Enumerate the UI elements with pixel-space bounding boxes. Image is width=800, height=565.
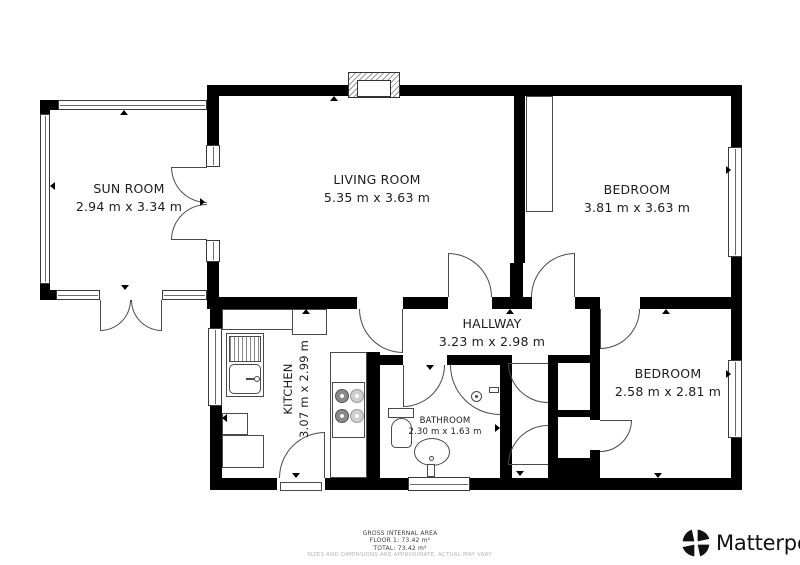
shower-head	[471, 391, 482, 402]
dimension-marker	[50, 182, 55, 190]
room-dims: 3.07 m x 2.99 m	[296, 340, 312, 438]
window	[728, 147, 742, 257]
dimension-marker	[726, 370, 731, 378]
wall	[590, 309, 600, 355]
room-label-bedroom-2: BEDROOM 2.58 m x 2.81 m	[615, 365, 721, 401]
window	[408, 477, 470, 491]
matterport-icon	[681, 528, 711, 558]
room-name: KITCHEN	[280, 340, 296, 438]
area-summary: GROSS INTERNAL AREA FLOOR 1: 73.42 m² TO…	[300, 530, 500, 559]
dimension-marker	[506, 309, 514, 314]
room-label-sun-room: SUN ROOM 2.94 m x 3.34 m	[76, 180, 182, 216]
matterport-wordmark: Matterport®	[716, 531, 800, 555]
room-dims: 3.81 m x 3.63 m	[584, 199, 690, 217]
washbasin-drain	[429, 456, 434, 461]
gross-internal-area-title: GROSS INTERNAL AREA	[300, 530, 500, 537]
kitchen-counter	[222, 435, 264, 468]
wall	[207, 85, 219, 145]
room-name: SUN ROOM	[76, 180, 182, 198]
wall	[367, 352, 380, 478]
door-arc	[100, 300, 131, 331]
room-dims: 5.35 m x 3.63 m	[324, 189, 430, 207]
room-name: BEDROOM	[584, 181, 690, 199]
room-name: HALLWAY	[439, 315, 545, 333]
dimension-marker	[222, 414, 227, 422]
dimension-marker	[426, 365, 434, 370]
washbasin	[414, 438, 450, 466]
door-arc	[403, 365, 445, 407]
door-arc	[600, 420, 632, 452]
room-label-bedroom-1: BEDROOM 3.81 m x 3.63 m	[584, 181, 690, 217]
dimension-marker	[302, 309, 310, 314]
wall	[575, 297, 600, 309]
faucet	[254, 376, 260, 382]
window	[206, 240, 220, 262]
door-arc	[279, 432, 325, 478]
dimension-marker	[292, 473, 300, 478]
door-arc	[600, 309, 640, 349]
dimension-marker	[516, 471, 524, 476]
room-dims: 3.23 m x 2.98 m	[439, 333, 545, 351]
window	[208, 328, 222, 406]
closet-interior	[558, 363, 590, 410]
dimension-marker	[495, 424, 500, 432]
floor-area: FLOOR 1: 73.42 m²	[300, 537, 500, 544]
stove-burner	[335, 409, 349, 423]
disclaimer: SIZES AND DIMENSIONS ARE APPROXIMATE, AC…	[300, 552, 500, 559]
door-arc	[508, 363, 548, 403]
room-name: LIVING ROOM	[324, 171, 430, 189]
room-label-hallway: HALLWAY 3.23 m x 2.98 m	[439, 315, 545, 351]
wall	[492, 297, 532, 309]
dimension-marker	[662, 309, 670, 314]
dimension-marker	[330, 96, 338, 101]
draining-board	[229, 336, 261, 362]
wall	[514, 85, 525, 263]
room-name: BEDROOM	[615, 365, 721, 383]
stove-burner	[350, 389, 364, 403]
stove-burner	[335, 389, 349, 403]
total-area: TOTAL: 73.42 m²	[300, 545, 500, 552]
closet-interior	[558, 417, 590, 458]
dimension-marker	[726, 166, 731, 174]
wall	[367, 355, 403, 365]
room-label-bathroom: BATHROOM 2.30 m x 1.63 m	[408, 416, 481, 438]
window	[58, 100, 207, 110]
room-dims: 2.58 m x 2.81 m	[615, 383, 721, 401]
room-dims: 2.30 m x 1.63 m	[408, 427, 481, 438]
door-gap	[590, 420, 600, 450]
window	[162, 290, 207, 300]
dimension-marker	[121, 285, 129, 290]
washbasin-pedestal	[427, 464, 435, 477]
brand-name: Matterport	[716, 531, 800, 555]
shower-valve	[489, 387, 499, 393]
wall	[403, 297, 448, 309]
wall	[640, 297, 742, 309]
door-arc	[131, 300, 162, 331]
wall	[207, 85, 742, 96]
closet-outline	[526, 96, 553, 212]
door-arc	[359, 309, 403, 353]
chimney-inner	[357, 80, 391, 97]
dimension-marker	[654, 473, 662, 478]
door-step	[280, 482, 322, 491]
door-arc	[531, 253, 575, 297]
room-dims: 2.94 m x 3.34 m	[76, 198, 182, 216]
door-arc	[508, 425, 548, 465]
room-name: BATHROOM	[408, 416, 481, 427]
dimension-marker	[120, 110, 128, 115]
dimension-marker	[200, 198, 205, 206]
wall	[207, 297, 357, 309]
matterport-logo: Matterport®	[681, 528, 800, 558]
room-label-kitchen: KITCHEN 3.07 m x 2.99 m	[280, 340, 312, 438]
room-label-living-room: LIVING ROOM 5.35 m x 3.63 m	[324, 171, 430, 207]
wall	[207, 262, 219, 300]
window	[206, 145, 220, 167]
floor-plan: SUN ROOM 2.94 m x 3.34 m LIVING ROOM 5.3…	[0, 0, 800, 565]
stove-burner	[350, 409, 364, 423]
door-arc	[448, 253, 492, 297]
window	[40, 114, 50, 284]
window	[56, 290, 100, 300]
faucet-spout	[246, 378, 254, 380]
